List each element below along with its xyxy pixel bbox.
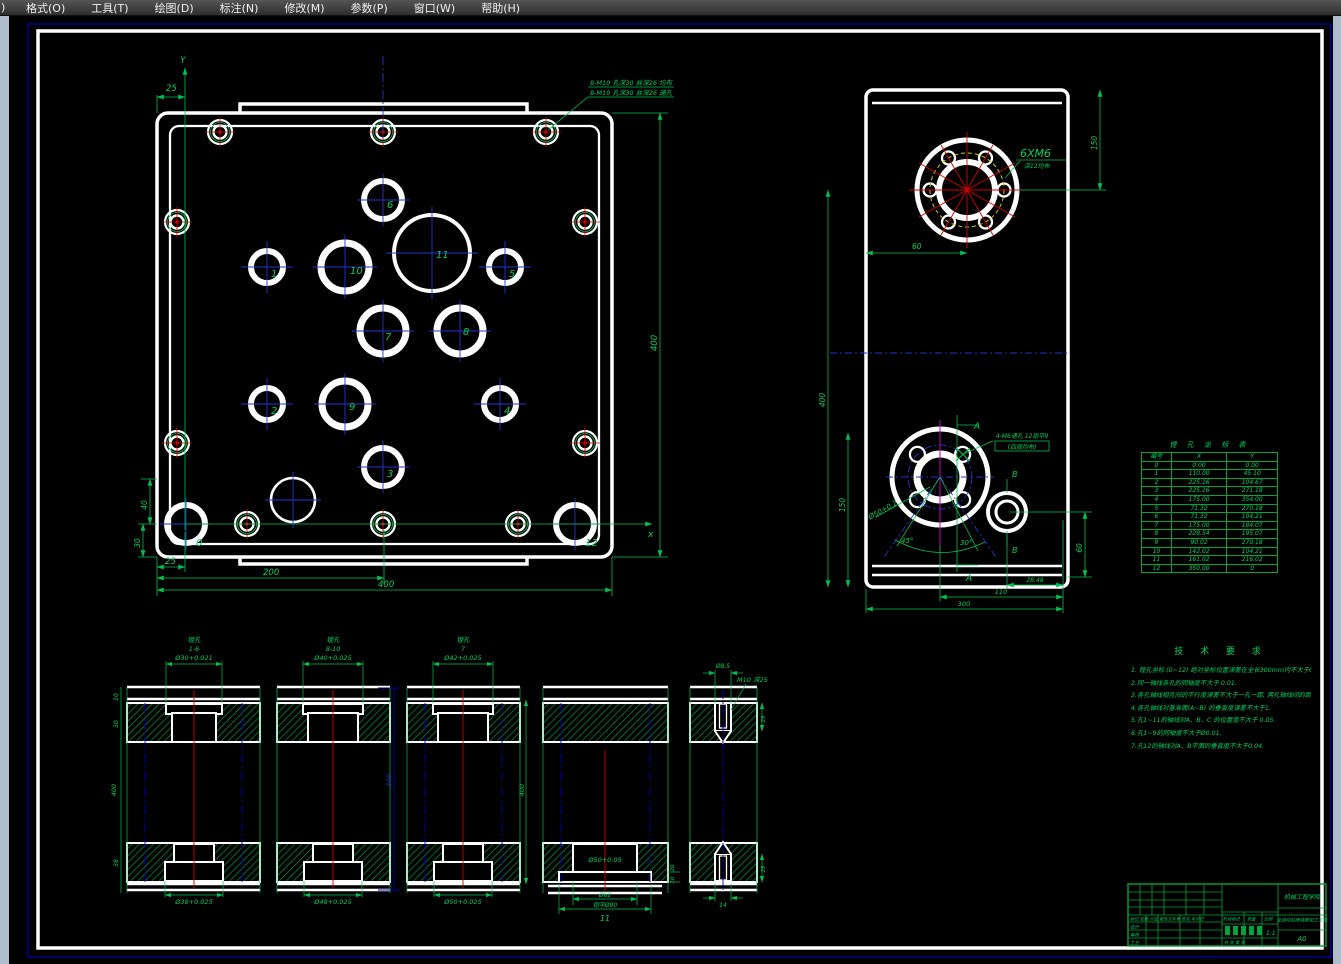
table-cell: 2 (1142, 479, 1171, 487)
table-cell: 7 (1142, 522, 1171, 530)
axis-x-label: x (647, 530, 654, 540)
table-cell: 12 (1142, 565, 1171, 573)
thread-callout: M10 深25 (737, 676, 768, 684)
table-cell: 71.32 (1171, 513, 1227, 521)
table-cell: 71.32 (1171, 505, 1227, 513)
section-title: 镗孔 (457, 636, 471, 644)
table-row: 3225.16271.18 (1142, 486, 1277, 495)
dim-label: 40 (140, 500, 149, 510)
menu-item-4[interactable]: 修改(M) (271, 0, 337, 16)
table-row: 4175.00354.00 (1142, 495, 1277, 504)
dim-label: Ø38+0.025 (174, 898, 212, 906)
section-view-5: Ø8.5 M10 深25 25 25 14 (690, 663, 768, 909)
dim-label: 300 (958, 600, 970, 608)
dim-label: 25 (165, 557, 176, 567)
dim-label: 10 (670, 876, 676, 883)
titleblock-design-label: 设计 (1130, 925, 1139, 931)
dim-label: 14 (719, 902, 727, 909)
dim-label: 400 (518, 784, 526, 796)
tech-requirement-line-3: 3.各孔轴线相互间的平行度误差不大于一孔一距, 两孔轴线间的距离误差不大于±0.… (1131, 690, 1311, 703)
dim-label: 400 (650, 335, 660, 351)
menu-item-1[interactable]: 工具(T) (78, 0, 141, 16)
table-cell: 编号 (1142, 453, 1171, 461)
section-view-2: 镗孔 8-10 Ø40+0.025 Ø48+0.025 500 (277, 636, 400, 906)
dim-label: 60 (912, 242, 922, 251)
right-panel-edge (1333, 15, 1341, 964)
menu-item-6[interactable]: 窗口(W) (401, 0, 468, 16)
titleblock-mass-label: 质量 (1247, 917, 1256, 922)
hole-label: 4 (504, 406, 510, 417)
table-cell: 354.00 (1226, 496, 1277, 504)
dim-label: 400 (110, 784, 118, 796)
table-cell: 110.00 (1171, 470, 1227, 478)
hole-label: 3 (387, 469, 393, 480)
table-row: 571.32270.18 (1142, 504, 1277, 513)
dim-label: Ø8.5 (715, 663, 730, 670)
table-cell: 104.21 (1226, 513, 1277, 521)
hole-label: 5 (509, 269, 515, 280)
tech-requirement-line-1: 1. 镗孔坐标.(0~12) 绝对坐标位置误差在全长300mm内不大于0.03. (1131, 665, 1311, 678)
table-cell: 90.02 (1171, 539, 1227, 547)
dim-label: 20 (670, 864, 676, 871)
dim-label: Ø62 (598, 892, 612, 899)
section-holes: 7 (461, 645, 466, 653)
table-cell: 195.07 (1226, 530, 1277, 538)
paper-boundary (28, 24, 1331, 957)
dim-label: 400 (378, 580, 394, 590)
drawing-frame (38, 31, 1322, 948)
table-cell: 270.18 (1226, 539, 1277, 547)
drawing-viewport[interactable]: 0 1 2 3 4 5 6 7 8 9 10 11 12 (0, 0, 1341, 964)
dim-label: 30 (113, 720, 120, 728)
table-cell: X (1171, 453, 1227, 461)
numbered-bores (167, 181, 594, 543)
titleblock-scale-label: 比例 (1264, 917, 1273, 922)
counterbore-callout: 4-M6通孔 12锪平9 (996, 432, 1049, 440)
dim-label: Ø42+0.025 (443, 654, 481, 662)
tech-requirement-line-7: 7.孔12的轴线对A、B平面的垂直度不大于0.04. (1131, 741, 1311, 754)
dim-label: 28.48 (1026, 577, 1043, 584)
flange-thread-callout: 6XM6 (1020, 147, 1051, 160)
dim-label: 30 (133, 538, 142, 548)
menu-item-2[interactable]: 绘图(D) (142, 0, 207, 16)
menu-item-clipped[interactable]: ) (0, 1, 13, 14)
hole-label: 0 (196, 538, 202, 549)
dim-label: 25 (761, 715, 767, 722)
table-cell: 350.00 (1171, 565, 1227, 573)
dim-label: 60 (1075, 543, 1084, 553)
dim-label: 150 (1090, 136, 1099, 151)
table-row: 990.02270.18 (1142, 538, 1277, 547)
titleblock-sheet-size: A0 (1296, 935, 1307, 943)
table-cell: 1 (1142, 470, 1171, 478)
titleblock-stage-label: 阶段标记 (1223, 917, 1241, 922)
table-row: 7175.00184.07 (1142, 521, 1277, 530)
paper-sheet (28, 24, 1331, 957)
technical-requirements: 技 术 要 求 1. 镗孔坐标.(0~12) 绝对坐标位置误差在全长300mm内… (1131, 644, 1311, 753)
dim-label: Ø48+0.025 (313, 898, 351, 906)
table-cell: 9 (1142, 539, 1171, 547)
tech-requirement-line-6: 6.孔1~9的同轴度不大于Ø0.01. (1131, 728, 1311, 741)
thread-callout: 8-M10 孔深30 丝深26 均布 (590, 79, 674, 87)
section-view-1: 镗孔 1-6 Ø30+0.021 Ø38+0.025 10 30 400 38 (110, 636, 260, 906)
section-a-label: A (965, 574, 972, 584)
section-view-4: Ø50+0.05 Ø62 锪平Ø90 11 20 10 (543, 687, 680, 923)
hole-label: 11 (436, 250, 449, 261)
table-cell: 3 (1142, 487, 1171, 495)
menu-item-5[interactable]: 参数(P) (338, 0, 401, 16)
titleblock-scale-value: 1:1 (1266, 930, 1276, 937)
section-b-label: B (1012, 470, 1018, 479)
hole-label: 6 (387, 200, 393, 211)
menu-bar: ) 格式(O)工具(T)绘图(D)标注(N)修改(M)参数(P)窗口(W)帮助(… (0, 0, 1341, 16)
section-title: 镗孔 (188, 636, 202, 644)
titleblock-process-label: 工艺 (1130, 941, 1140, 947)
table-row: 2225.16104.67 (1142, 478, 1277, 487)
dim-label: 10 (113, 693, 120, 701)
dim-label: 150 (838, 498, 847, 513)
hole-label: 12 (585, 538, 598, 549)
dim-label: Ø40+0.025 (313, 654, 351, 662)
table-cell: 8 (1142, 530, 1171, 538)
dim-label: 38 (113, 859, 120, 867)
table-cell: 161.02 (1171, 556, 1227, 564)
table-cell: 0 (1142, 462, 1171, 470)
section-b-label: B (1012, 546, 1018, 555)
angle-label: 30° (960, 539, 972, 547)
section-holes: 11 (600, 914, 610, 923)
dia-label: Ø50+0.2 (866, 499, 899, 522)
flange-thread-sub: 深12均布 (1024, 162, 1051, 170)
counterbore-callout-2: (四周均布) (1008, 443, 1037, 451)
coordinate-table-title: 镗 孔 坐 标 表 (1141, 440, 1278, 450)
bore-coordinate-table: 镗 孔 坐 标 表 编号XY00.000.001110.0045.102225.… (1141, 440, 1278, 573)
table-cell: 4 (1142, 496, 1171, 504)
table-cell: 225.16 (1171, 487, 1227, 495)
table-row: 10142.02104.21 (1142, 547, 1277, 556)
hole-label: 9 (349, 402, 355, 413)
dim-label: 200 (263, 568, 279, 578)
title-block: 标记 处数 分区 更改文件号 签名 年月日 设计 审核 工艺 阶段标记 质量 比… (1128, 884, 1329, 947)
dim-label: 110 (995, 588, 1007, 596)
titleblock-audit-label: 审核 (1130, 933, 1140, 939)
table-cell: 184.07 (1226, 522, 1277, 530)
table-cell: 0.00 (1171, 462, 1227, 470)
thread-callout: 8-M10 孔深30 丝深26 通孔 (590, 89, 673, 97)
table-cell: 225.16 (1171, 479, 1227, 487)
table-row: 12350.000 (1142, 564, 1277, 573)
hole-label: 1 (271, 269, 277, 280)
table-cell: 6 (1142, 513, 1171, 521)
side-view: 6XM6 深12均布 150 60 400 150 4-M6通孔 12锪平9 (… (818, 90, 1106, 613)
dim-label: 400 (818, 393, 827, 408)
table-cell: Y (1226, 453, 1277, 461)
hole-label: 8 (463, 327, 469, 338)
dim-label: 500 (385, 774, 393, 786)
section-a-label: A (973, 422, 980, 432)
hole-label: 10 (350, 266, 363, 277)
table-row: 8228.54195.07 (1142, 529, 1277, 538)
section-view-3: 镗孔 7 Ø42+0.025 Ø50+0.025 400 (407, 636, 526, 906)
table-cell: 0 (1226, 565, 1277, 573)
section-holes: 1-6 (189, 645, 200, 653)
axis-y-label: Y (180, 56, 187, 66)
table-cell: 5 (1142, 505, 1171, 513)
red-centerlines (909, 132, 1025, 248)
section-title: 镗孔 (327, 636, 341, 644)
titleblock-project: 全自动钻床底座加工工艺 (1277, 918, 1329, 924)
table-cell: 228.54 (1171, 530, 1227, 538)
tech-requirement-line-2: 2.同一轴线各孔的同轴度不大于 0.01. (1131, 678, 1311, 691)
titleblock-sheets: 共 张 第 张 (1224, 940, 1246, 945)
dim-label: Ø30+0.021 (174, 654, 212, 662)
tech-requirement-line-4: 4.各孔轴线对基准面(A~B) 的垂直度误差不大于1. (1131, 703, 1311, 716)
dim-label: Ø50+0.025 (443, 898, 481, 906)
table-row: 00.000.00 (1142, 461, 1277, 470)
table-cell: 104.21 (1226, 548, 1277, 556)
menu-item-3[interactable]: 标注(N) (207, 0, 272, 16)
table-row: 11161.02216.02 (1142, 555, 1277, 564)
table-cell: 0.00 (1226, 462, 1277, 470)
section-holes: 8-10 (326, 645, 341, 653)
menu-item-0[interactable]: 格式(O) (13, 0, 78, 16)
table-cell: 216.02 (1226, 556, 1277, 564)
table-cell: 271.18 (1226, 487, 1277, 495)
table-cell: 142.02 (1171, 548, 1227, 556)
angle-label: 45° (901, 537, 913, 545)
front-view: 0 1 2 3 4 5 6 7 8 9 10 11 12 (133, 56, 674, 596)
technical-requirements-title: 技 术 要 求 (1131, 644, 1311, 657)
table-cell: 10 (1142, 548, 1171, 556)
dim-label: 锪平Ø90 (593, 901, 618, 909)
table-cell: 270.18 (1226, 505, 1277, 513)
table-header-row: 编号XY (1142, 453, 1277, 461)
table-cell: 104.67 (1226, 479, 1277, 487)
dim-label: 25 (761, 865, 767, 872)
hole-label: 7 (385, 332, 392, 343)
hole-label: 2 (271, 406, 277, 417)
table-row: 1110.0045.10 (1142, 469, 1277, 478)
table-cell: 45.10 (1226, 470, 1277, 478)
dim-label: 25 (166, 84, 177, 94)
tech-requirement-line-5: 5.孔1~11的轴线对A、B、C 的位置度不大于 0.05. (1131, 715, 1311, 728)
table-cell: 175.00 (1171, 522, 1227, 530)
table-cell: 175.00 (1171, 496, 1227, 504)
menu-item-7[interactable]: 帮助(H) (468, 0, 533, 16)
table-cell: 11 (1142, 556, 1171, 564)
left-panel-edge (0, 15, 9, 964)
bore-dia-label: Ø50+0.05 (587, 856, 621, 864)
titleblock-school: 机械工程学院 (1284, 893, 1321, 901)
titleblock-revision-header: 标记 处数 分区 更改文件号 签名 年月日 (1130, 917, 1204, 922)
table-row: 671.32104.21 (1142, 512, 1277, 521)
